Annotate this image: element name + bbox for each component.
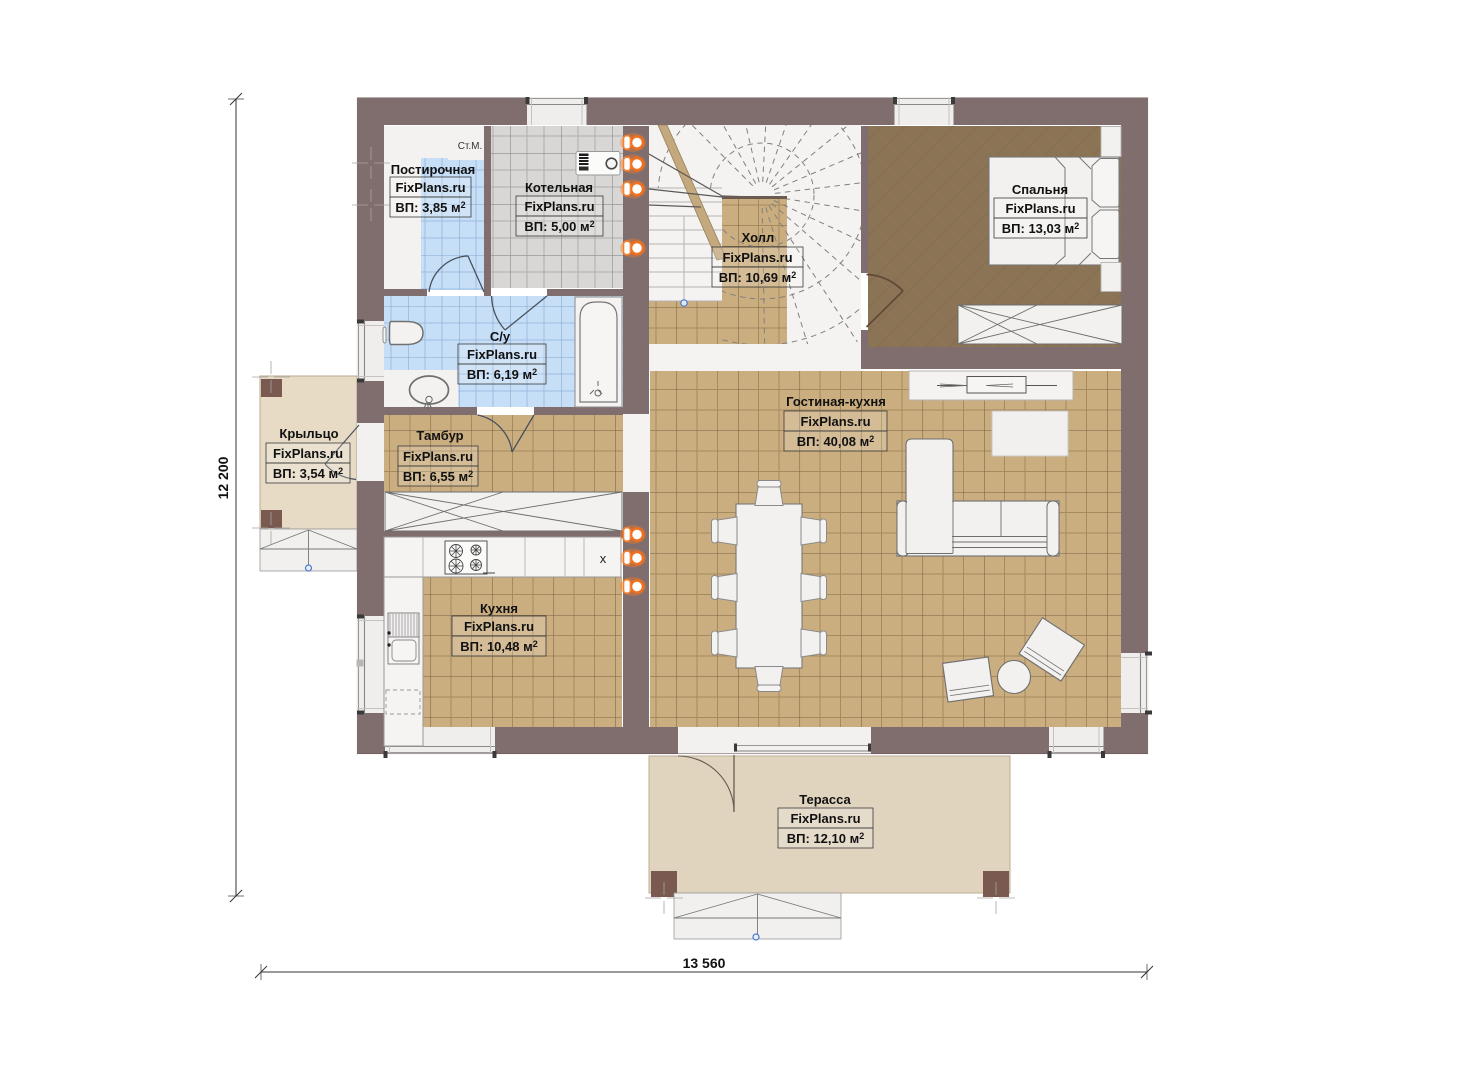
svg-text:ВП: 6,19 м2: ВП: 6,19 м2 (467, 367, 537, 382)
svg-text:FixPlans.ru: FixPlans.ru (524, 199, 594, 214)
svg-text:ВП: 12,10 м2: ВП: 12,10 м2 (787, 831, 864, 846)
svg-text:Крыльцо: Крыльцо (279, 426, 338, 441)
svg-text:FixPlans.ru: FixPlans.ru (273, 446, 343, 461)
svg-text:12 200: 12 200 (215, 456, 231, 499)
svg-text:FixPlans.ru: FixPlans.ru (800, 414, 870, 429)
svg-text:Тамбур: Тамбур (416, 428, 463, 443)
svg-text:ВП: 3,85 м2: ВП: 3,85 м2 (395, 200, 465, 215)
svg-text:Гостиная-кухня: Гостиная-кухня (786, 394, 886, 409)
svg-text:13 560: 13 560 (683, 955, 726, 971)
svg-text:ВП: 10,48 м2: ВП: 10,48 м2 (460, 639, 537, 654)
svg-text:FixPlans.ru: FixPlans.ru (464, 619, 534, 634)
svg-text:FixPlans.ru: FixPlans.ru (395, 180, 465, 195)
svg-text:Кухня: Кухня (480, 601, 518, 616)
svg-text:ВП: 6,55 м2: ВП: 6,55 м2 (403, 469, 473, 484)
svg-text:ВП: 5,00 м2: ВП: 5,00 м2 (524, 219, 594, 234)
svg-text:Спальня: Спальня (1012, 182, 1068, 197)
svg-text:FixPlans.ru: FixPlans.ru (722, 250, 792, 265)
svg-text:ВП: 3,54 м2: ВП: 3,54 м2 (273, 466, 343, 481)
svg-text:Холл: Холл (742, 230, 775, 245)
svg-text:Постирочная: Постирочная (391, 162, 475, 177)
svg-text:FixPlans.ru: FixPlans.ru (403, 449, 473, 464)
svg-text:Котельная: Котельная (525, 180, 593, 195)
svg-text:FixPlans.ru: FixPlans.ru (467, 347, 537, 362)
svg-text:С/у: С/у (490, 329, 511, 344)
svg-text:Ст.М.: Ст.М. (458, 141, 483, 152)
svg-text:FixPlans.ru: FixPlans.ru (790, 811, 860, 826)
svg-text:ВП: 10,69 м2: ВП: 10,69 м2 (719, 270, 796, 285)
svg-text:Терасса: Терасса (799, 792, 851, 807)
svg-text:ВП: 40,08 м2: ВП: 40,08 м2 (797, 434, 874, 449)
svg-text:FixPlans.ru: FixPlans.ru (1005, 201, 1075, 216)
svg-text:ВП: 13,03 м2: ВП: 13,03 м2 (1002, 221, 1079, 236)
svg-text:x: x (600, 551, 607, 566)
